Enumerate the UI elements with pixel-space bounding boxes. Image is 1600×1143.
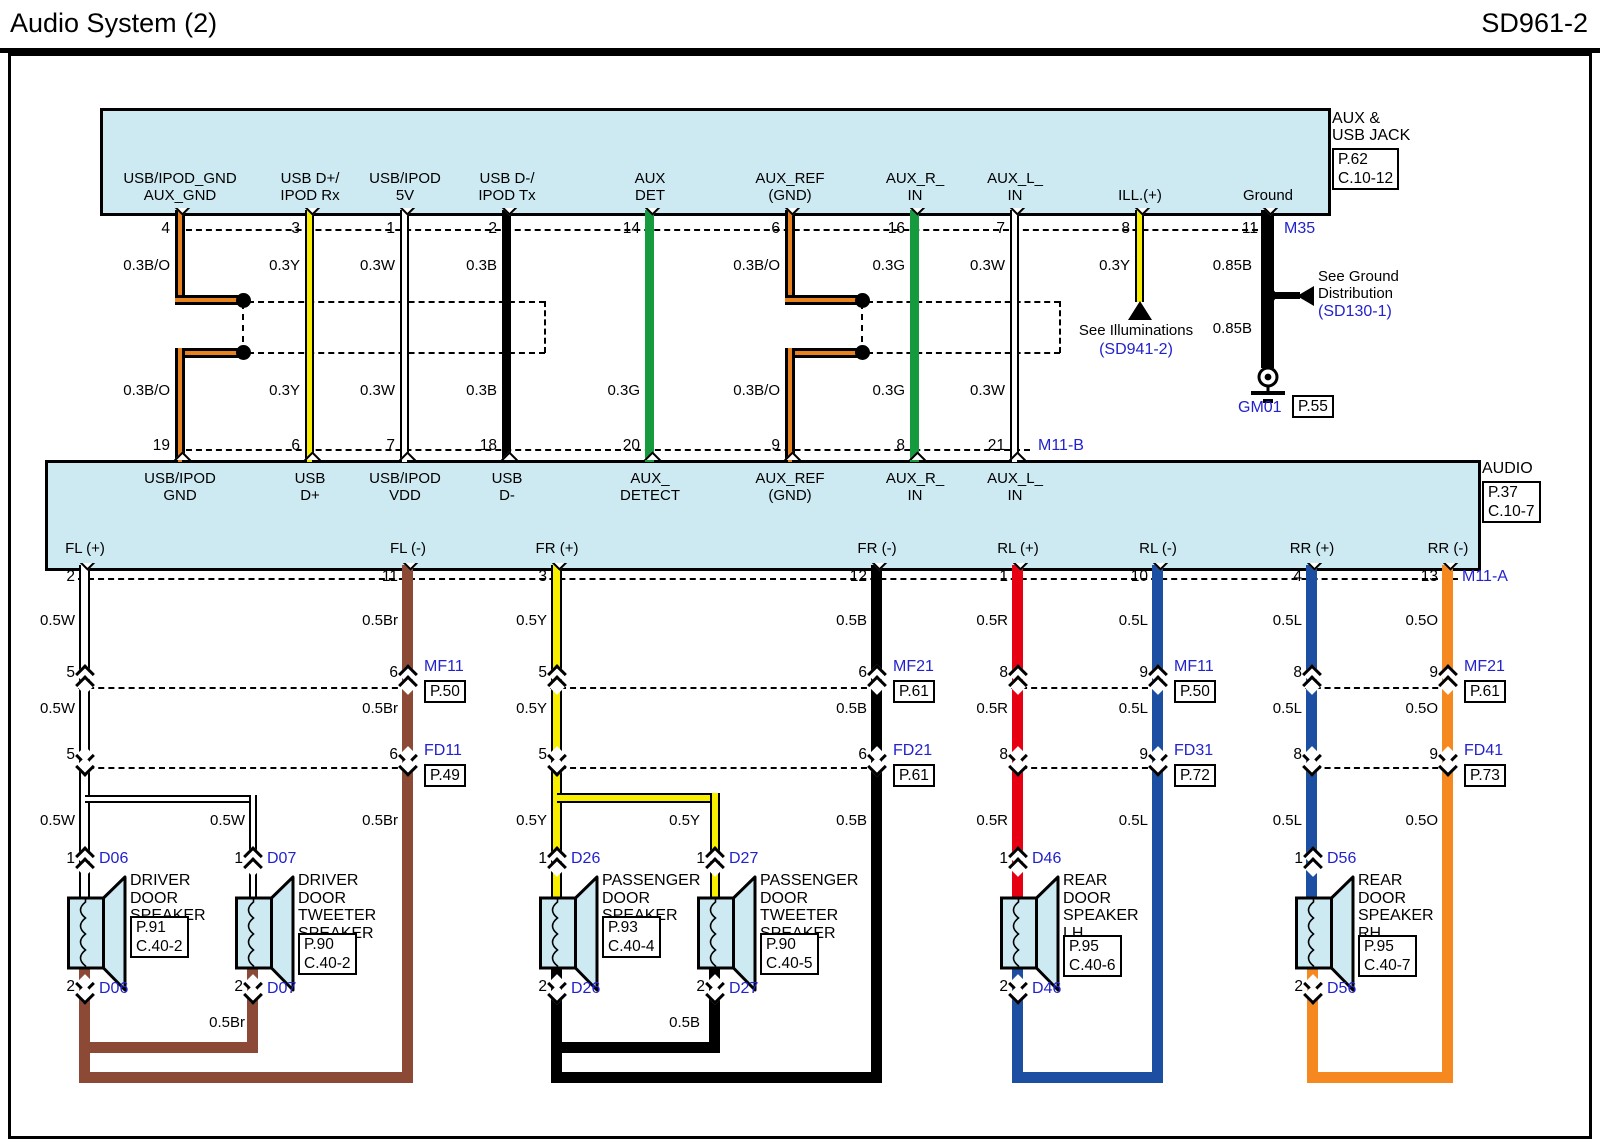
junction-dot bbox=[855, 345, 870, 360]
shield-dash bbox=[248, 352, 545, 354]
connector-chevron-icon bbox=[1438, 666, 1458, 692]
pin-number: 6 bbox=[821, 746, 867, 764]
wire-color-code: 0.5O bbox=[1374, 812, 1438, 829]
pin-number: 6 bbox=[734, 220, 780, 238]
channel-label: RR (+) bbox=[1290, 540, 1335, 557]
connector-id: FD31 bbox=[1174, 742, 1213, 760]
connector-page-ref: P.61 bbox=[893, 680, 935, 703]
wire-color-code: 0.3B bbox=[433, 382, 497, 399]
pin-number: 9 bbox=[1102, 746, 1148, 764]
channel-label: RL (-) bbox=[1139, 540, 1177, 557]
audio-pin-label: AUX_L_ IN bbox=[987, 470, 1043, 504]
wire-color-code: 0.5Br bbox=[334, 700, 398, 717]
connector-id: MF11 bbox=[1174, 658, 1214, 676]
connector-id: FD11 bbox=[424, 742, 462, 760]
pin-notch-icon bbox=[303, 208, 321, 218]
pin-number: 10 bbox=[1102, 568, 1148, 586]
pin-notch-icon bbox=[908, 450, 926, 460]
connector-page-ref: P.73 bbox=[1464, 764, 1506, 787]
pin-notch-icon bbox=[398, 450, 416, 460]
wire-segment bbox=[175, 348, 185, 462]
wire-segment bbox=[1012, 1072, 1163, 1083]
speaker-connector-id: D46 bbox=[1032, 980, 1061, 998]
speaker-ref: P.95 C.40-7 bbox=[1358, 935, 1417, 977]
connector-chevron-icon bbox=[1302, 666, 1322, 692]
wire-color-code: 0.5B bbox=[636, 1014, 700, 1031]
aux-pin-label: ILL.(+) bbox=[1118, 187, 1162, 204]
pin-notch-icon bbox=[78, 563, 96, 573]
pin-notch-icon bbox=[550, 563, 568, 573]
illumination-ref: (SD941-2) bbox=[1099, 341, 1173, 358]
speaker-connector-id: D07 bbox=[267, 850, 296, 868]
connector-page-ref: P.50 bbox=[1174, 680, 1216, 703]
pin-notch-icon bbox=[870, 563, 888, 573]
connector-row-fd bbox=[550, 767, 877, 769]
connector-page-ref: P.49 bbox=[424, 764, 466, 787]
pin-number: 16 bbox=[859, 220, 905, 238]
speaker-ref: P.95 C.40-6 bbox=[1063, 935, 1122, 977]
wire-segment bbox=[551, 1072, 882, 1083]
wire-color-code: 0.5W bbox=[11, 700, 75, 717]
connector-row-m11a bbox=[78, 578, 1458, 580]
audio-pin-label: AUX_ DETECT bbox=[620, 470, 680, 504]
wire-color-code: 0.5Y bbox=[483, 812, 547, 829]
aux-pin-label: AUX_REF (GND) bbox=[755, 170, 824, 204]
connector-chevron-icon bbox=[75, 666, 95, 692]
pin-number: 2 bbox=[962, 978, 1008, 996]
pin-number: 1 bbox=[1257, 850, 1303, 868]
pin-number: 12 bbox=[821, 568, 867, 586]
junction-dot bbox=[1261, 288, 1276, 303]
pin-number: 3 bbox=[501, 568, 547, 586]
connector-page-ref: P.61 bbox=[893, 764, 935, 787]
wire-segment bbox=[85, 795, 253, 803]
pin-number: 4 bbox=[124, 220, 170, 238]
connector-chevron-icon bbox=[398, 666, 418, 692]
diagram-code: SD961-2 bbox=[1481, 8, 1588, 39]
connector-row-mf bbox=[1011, 687, 1158, 689]
wire-color-code: 0.5W bbox=[11, 812, 75, 829]
connector-page-ref: P.61 bbox=[1464, 680, 1506, 703]
connector-page-ref: P.72 bbox=[1174, 764, 1216, 787]
shield-dash bbox=[867, 301, 1060, 303]
speaker-connector-id: D26 bbox=[571, 980, 600, 998]
connector-row-mf bbox=[550, 687, 877, 689]
pin-number: 11 bbox=[1212, 220, 1258, 238]
wire-segment bbox=[785, 348, 795, 462]
wire-color-code: 0.5O bbox=[1374, 612, 1438, 629]
pin-number: 2 bbox=[659, 978, 705, 996]
shield-dash bbox=[867, 352, 1060, 354]
pin-number: 2 bbox=[29, 978, 75, 996]
wire-color-code: 0.3B bbox=[433, 257, 497, 274]
connector-chevron-icon bbox=[75, 976, 95, 1002]
connector-id-m11b: M11-B bbox=[1038, 437, 1084, 455]
wire-color-code: 0.5O bbox=[1374, 700, 1438, 717]
connector-page-ref: P.50 bbox=[424, 680, 466, 703]
connector-chevron-icon bbox=[75, 748, 95, 774]
wire-segment bbox=[79, 1042, 258, 1053]
audio-pin-label: USB/IPOD VDD bbox=[369, 470, 441, 504]
connector-row-mf bbox=[78, 687, 408, 689]
connector-chevron-icon bbox=[1008, 666, 1028, 692]
connector-chevron-icon bbox=[547, 848, 567, 874]
connector-chevron-icon bbox=[398, 748, 418, 774]
wire-segment bbox=[402, 565, 413, 1083]
pin-number: 21 bbox=[959, 437, 1005, 455]
connector-chevron-icon bbox=[1008, 748, 1028, 774]
wire-segment bbox=[1442, 565, 1453, 1083]
connector-chevron-icon bbox=[1303, 976, 1323, 1002]
audio-pin-label: USB/IPOD GND bbox=[144, 470, 216, 504]
wire-color-code: 0.5Br bbox=[181, 1014, 245, 1031]
pin-number: 11 bbox=[352, 568, 398, 586]
illumination-note: See Illuminations bbox=[1079, 322, 1193, 339]
wire-color-code: 0.5R bbox=[944, 812, 1008, 829]
connector-id: MF11 bbox=[424, 658, 464, 676]
connector-chevron-icon bbox=[1438, 748, 1458, 774]
connector-id: MF21 bbox=[893, 658, 934, 676]
channel-label: RL (+) bbox=[997, 540, 1039, 557]
speaker-connector-id: D56 bbox=[1327, 850, 1356, 868]
wire-segment bbox=[1307, 1072, 1453, 1083]
speaker-connector-id: D07 bbox=[267, 980, 296, 998]
speaker-connector-id: D27 bbox=[729, 850, 758, 868]
pin-number: 19 bbox=[124, 437, 170, 455]
aux-pin-label: Ground bbox=[1243, 187, 1293, 204]
wire-color-code: 0.3B/O bbox=[716, 257, 780, 274]
channel-label: FR (+) bbox=[536, 540, 579, 557]
wire-segment bbox=[175, 210, 185, 305]
junction-dot bbox=[236, 293, 251, 308]
wire-segment bbox=[305, 210, 314, 462]
connector-row-fd bbox=[1011, 767, 1158, 769]
pin-notch-icon bbox=[398, 208, 416, 218]
pin-number: 3 bbox=[254, 220, 300, 238]
aux-pin-label: USB/IPOD_GND AUX_GND bbox=[123, 170, 236, 204]
channel-label: RR (-) bbox=[1428, 540, 1469, 557]
pin-number: 2 bbox=[1257, 978, 1303, 996]
wire-color-code: 0.85B bbox=[1188, 320, 1252, 337]
connector-chevron-icon bbox=[1008, 848, 1028, 874]
connector-chevron-icon bbox=[705, 848, 725, 874]
pin-number: 20 bbox=[594, 437, 640, 455]
junction-dot bbox=[236, 345, 251, 360]
connector-chevron-icon bbox=[867, 748, 887, 774]
aux-usb-jack-ref: P.62 C.10-12 bbox=[1332, 148, 1399, 190]
audio-pin-label: USB D+ bbox=[295, 470, 326, 504]
shield-dash bbox=[248, 301, 545, 303]
wire-segment bbox=[502, 210, 511, 462]
pin-notch-icon bbox=[173, 450, 191, 460]
pin-number: 7 bbox=[959, 220, 1005, 238]
channel-label: FR (-) bbox=[857, 540, 896, 557]
wiring-diagram-page: Audio System (2) SD961-2 AUX & USB JACK … bbox=[0, 0, 1600, 1143]
aux-pin-label: USB D-/ IPOD Tx bbox=[478, 170, 535, 204]
junction-dot bbox=[855, 293, 870, 308]
pin-number: 2 bbox=[501, 978, 547, 996]
connector-row-fd bbox=[1305, 767, 1448, 769]
wire-color-code: 0.3B/O bbox=[106, 382, 170, 399]
pin-notch-icon bbox=[1305, 563, 1323, 573]
channel-label: FL (-) bbox=[390, 540, 426, 557]
pin-number: 9 bbox=[1102, 664, 1148, 682]
wire-segment bbox=[871, 565, 882, 1083]
wire-color-code: 0.5L bbox=[1238, 700, 1302, 717]
wire-color-code: 0.5L bbox=[1084, 700, 1148, 717]
pin-notch-icon bbox=[643, 208, 661, 218]
aux-pin-label: AUX_L_ IN bbox=[987, 170, 1043, 204]
connector-id-m35: M35 bbox=[1284, 220, 1315, 238]
pin-notch-icon bbox=[173, 208, 191, 218]
audio-unit-name: AUDIO bbox=[1482, 460, 1533, 477]
speaker-ref: P.90 C.40-5 bbox=[760, 933, 819, 975]
speaker-connector-id: D06 bbox=[99, 850, 128, 868]
connector-chevron-icon bbox=[1008, 976, 1028, 1002]
wire-color-code: 0.5R bbox=[944, 700, 1008, 717]
wire-color-code: 0.5R bbox=[944, 612, 1008, 629]
wire-color-code: 0.85B bbox=[1188, 257, 1252, 274]
wire-color-code: 0.3Y bbox=[236, 257, 300, 274]
connector-chevron-icon bbox=[547, 976, 567, 1002]
connector-id: MF21 bbox=[1464, 658, 1505, 676]
connector-row-mf bbox=[1305, 687, 1448, 689]
connector-chevron-icon bbox=[1148, 748, 1168, 774]
pin-number: 9 bbox=[1392, 664, 1438, 682]
ground-ref: (SD130-1) bbox=[1318, 303, 1392, 320]
aux-pin-label: USB/IPOD 5V bbox=[369, 170, 441, 204]
pin-notch-icon bbox=[783, 208, 801, 218]
connector-chevron-icon bbox=[547, 666, 567, 692]
wire-segment bbox=[785, 210, 795, 305]
pin-notch-icon bbox=[1441, 563, 1459, 573]
wire-segment bbox=[551, 1042, 720, 1053]
connector-chevron-icon bbox=[243, 976, 263, 1002]
aux-pin-label: AUX_R_ IN bbox=[886, 170, 944, 204]
wire-color-code: 0.3B/O bbox=[106, 257, 170, 274]
pin-notch-icon bbox=[1261, 208, 1279, 218]
pin-number: 2 bbox=[29, 568, 75, 586]
aux-pin-label: USB D+/ IPOD Rx bbox=[280, 170, 339, 204]
wire-segment bbox=[79, 1072, 413, 1083]
wire-color-code: 0.5Br bbox=[334, 812, 398, 829]
wire-color-code: 0.5B bbox=[803, 812, 867, 829]
wire-color-code: 0.5Y bbox=[483, 700, 547, 717]
pin-number: 1 bbox=[962, 568, 1008, 586]
ground-note: See Ground Distribution bbox=[1318, 268, 1399, 302]
pin-notch-icon bbox=[1008, 450, 1026, 460]
wire-segment bbox=[910, 210, 919, 462]
connector-chevron-icon bbox=[705, 976, 725, 1002]
wire-color-code: 0.3G bbox=[576, 382, 640, 399]
pin-number: 13 bbox=[1392, 568, 1438, 586]
speaker-name: PASSENGER DOOR TWEETER SPEAKER bbox=[760, 872, 858, 942]
pin-notch-icon bbox=[908, 208, 926, 218]
ground-page-ref: P.55 bbox=[1292, 395, 1334, 418]
wire-color-code: 0.5L bbox=[1084, 812, 1148, 829]
pin-number: 5 bbox=[29, 746, 75, 764]
wire-color-code: 0.5L bbox=[1238, 612, 1302, 629]
channel-label: FL (+) bbox=[65, 540, 105, 557]
pin-number: 5 bbox=[501, 746, 547, 764]
pin-notch-icon bbox=[401, 563, 419, 573]
wire-segment bbox=[557, 793, 720, 803]
pin-notch-icon bbox=[783, 450, 801, 460]
wire-color-code: 0.5L bbox=[1238, 812, 1302, 829]
shield-dash bbox=[1059, 301, 1061, 353]
page-title: Audio System (2) bbox=[10, 8, 217, 39]
wire-color-code: 0.3Y bbox=[1066, 257, 1130, 274]
pin-number: 8 bbox=[1256, 746, 1302, 764]
wire-color-code: 0.5B bbox=[803, 700, 867, 717]
pin-number: 8 bbox=[1084, 220, 1130, 238]
pin-notch-icon bbox=[1133, 208, 1151, 218]
speaker-ref: P.90 C.40-2 bbox=[298, 933, 357, 975]
connector-chevron-icon bbox=[867, 666, 887, 692]
pin-notch-icon bbox=[1151, 563, 1169, 573]
connector-chevron-icon bbox=[547, 748, 567, 774]
speaker-ref: P.91 C.40-2 bbox=[130, 916, 189, 958]
wire-segment bbox=[645, 210, 654, 462]
offpage-arrow-icon bbox=[1128, 301, 1152, 320]
pin-number: 2 bbox=[197, 978, 243, 996]
wire-color-code: 0.3G bbox=[841, 382, 905, 399]
pin-number: 8 bbox=[859, 437, 905, 455]
wire-color-code: 0.3B/O bbox=[716, 382, 780, 399]
pin-notch-icon bbox=[1011, 563, 1029, 573]
shield-dash bbox=[544, 301, 546, 353]
speaker-ref: P.93 C.40-4 bbox=[602, 916, 661, 958]
aux-pin-label: AUX DET bbox=[635, 170, 666, 204]
speaker-connector-id: D26 bbox=[571, 850, 600, 868]
connector-row-fd bbox=[78, 767, 408, 769]
wire-color-code: 0.3W bbox=[331, 257, 395, 274]
pin-number: 8 bbox=[1256, 664, 1302, 682]
wire-segment bbox=[1152, 565, 1163, 1083]
pin-number: 9 bbox=[1392, 746, 1438, 764]
offpage-arrow-icon bbox=[1297, 286, 1314, 306]
pin-notch-icon bbox=[643, 450, 661, 460]
ground-id: GM01 bbox=[1238, 399, 1282, 417]
pin-number: 4 bbox=[1256, 568, 1302, 586]
speaker-connector-id: D27 bbox=[729, 980, 758, 998]
pin-number: 1 bbox=[501, 850, 547, 868]
pin-notch-icon bbox=[1008, 208, 1026, 218]
wire-color-code: 0.5W bbox=[181, 812, 245, 829]
pin-number: 1 bbox=[349, 220, 395, 238]
pin-number: 1 bbox=[29, 850, 75, 868]
wire-color-code: 0.5L bbox=[1084, 612, 1148, 629]
pin-number: 7 bbox=[349, 437, 395, 455]
wire-segment bbox=[1010, 210, 1019, 462]
wire-color-code: 0.5B bbox=[803, 612, 867, 629]
connector-chevron-icon bbox=[75, 848, 95, 874]
wire-color-code: 0.3Y bbox=[236, 382, 300, 399]
speaker-connector-id: D56 bbox=[1327, 980, 1356, 998]
wire-color-code: 0.3W bbox=[941, 257, 1005, 274]
connector-id: FD41 bbox=[1464, 742, 1503, 760]
connector-chevron-icon bbox=[1303, 848, 1323, 874]
connector-id: FD21 bbox=[893, 742, 932, 760]
speaker-connector-id: D46 bbox=[1032, 850, 1061, 868]
pin-notch-icon bbox=[500, 208, 518, 218]
audio-pin-label: USB D- bbox=[492, 470, 523, 504]
speaker-name: REAR DOOR SPEAKER LH bbox=[1063, 872, 1139, 942]
wire-segment bbox=[400, 210, 409, 462]
speaker-name: DRIVER DOOR TWEETER SPEAKER bbox=[298, 872, 376, 942]
wire-color-code: 0.3W bbox=[941, 382, 1005, 399]
audio-unit-ref: P.37 C.10-7 bbox=[1482, 481, 1541, 523]
pin-number: 2 bbox=[451, 220, 497, 238]
speaker-connector-id: D06 bbox=[99, 980, 128, 998]
pin-number: 9 bbox=[734, 437, 780, 455]
pin-number: 5 bbox=[501, 664, 547, 682]
pin-number: 8 bbox=[962, 664, 1008, 682]
pin-number: 5 bbox=[29, 664, 75, 682]
wire-segment bbox=[1135, 210, 1144, 302]
audio-pin-label: AUX_R_ IN bbox=[886, 470, 944, 504]
connector-chevron-icon bbox=[243, 848, 263, 874]
pin-number: 6 bbox=[821, 664, 867, 682]
audio-pin-label: AUX_REF (GND) bbox=[755, 470, 824, 504]
wire-color-code: 0.3G bbox=[841, 257, 905, 274]
wire-color-code: 0.5W bbox=[11, 612, 75, 629]
pin-number: 14 bbox=[594, 220, 640, 238]
pin-notch-icon bbox=[500, 450, 518, 460]
pin-number: 6 bbox=[352, 746, 398, 764]
pin-number: 18 bbox=[451, 437, 497, 455]
wire-color-code: 0.5Y bbox=[636, 812, 700, 829]
pin-number: 6 bbox=[254, 437, 300, 455]
speaker-name: REAR DOOR SPEAKER RH bbox=[1358, 872, 1434, 942]
pin-number: 1 bbox=[197, 850, 243, 868]
aux-usb-jack-name: AUX & USB JACK bbox=[1332, 110, 1410, 144]
pin-number: 8 bbox=[962, 746, 1008, 764]
wire-color-code: 0.5Br bbox=[334, 612, 398, 629]
pin-number: 1 bbox=[659, 850, 705, 868]
connector-id-m11a: M11-A bbox=[1462, 568, 1508, 586]
pin-notch-icon bbox=[303, 450, 321, 460]
connector-chevron-icon bbox=[1148, 666, 1168, 692]
pin-number: 6 bbox=[352, 664, 398, 682]
connector-chevron-icon bbox=[1302, 748, 1322, 774]
pin-number: 1 bbox=[962, 850, 1008, 868]
wire-color-code: 0.5Y bbox=[483, 612, 547, 629]
wire-color-code: 0.3W bbox=[331, 382, 395, 399]
